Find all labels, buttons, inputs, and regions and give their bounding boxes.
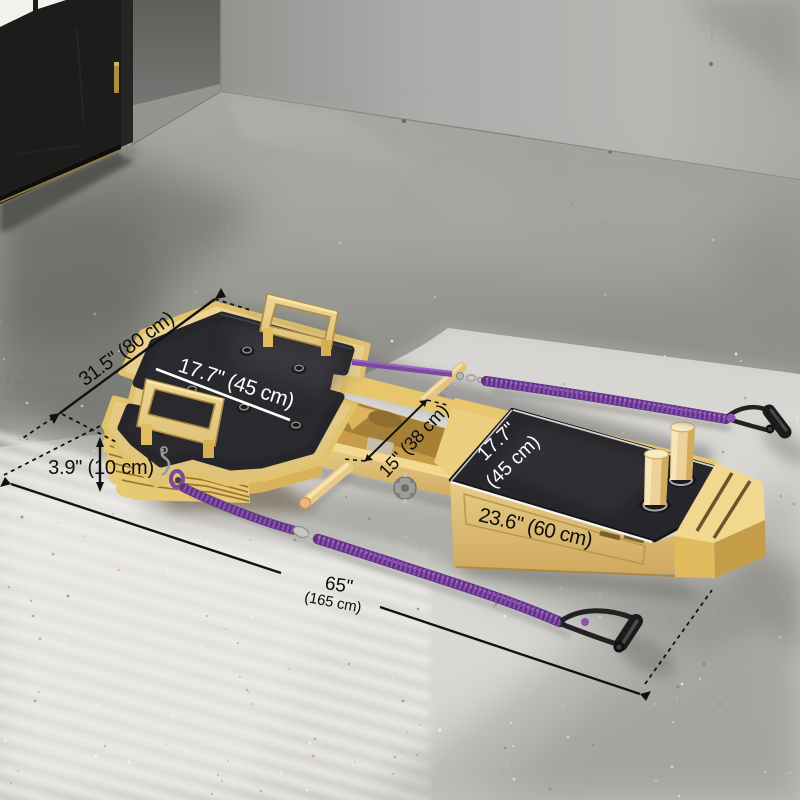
svg-text:3.9" (10 cm): 3.9" (10 cm) xyxy=(48,457,154,479)
